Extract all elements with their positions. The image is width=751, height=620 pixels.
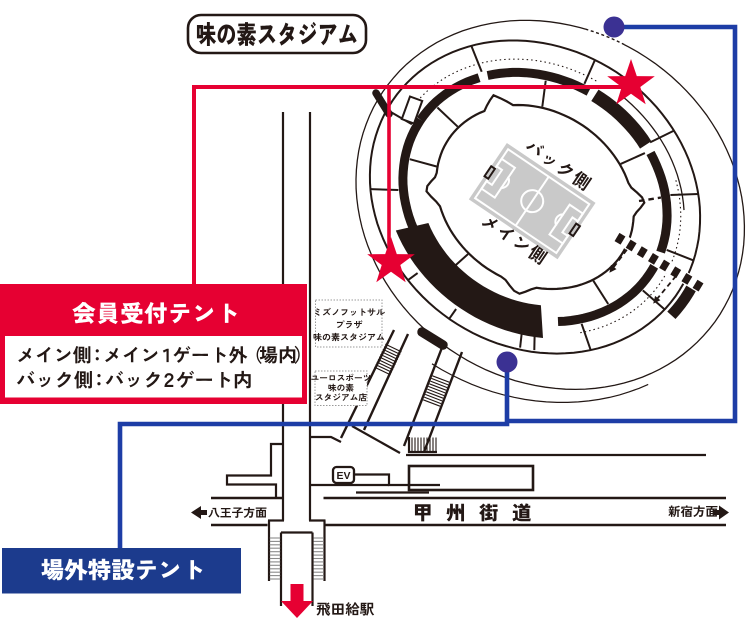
- svg-text:EV: EV: [336, 470, 350, 482]
